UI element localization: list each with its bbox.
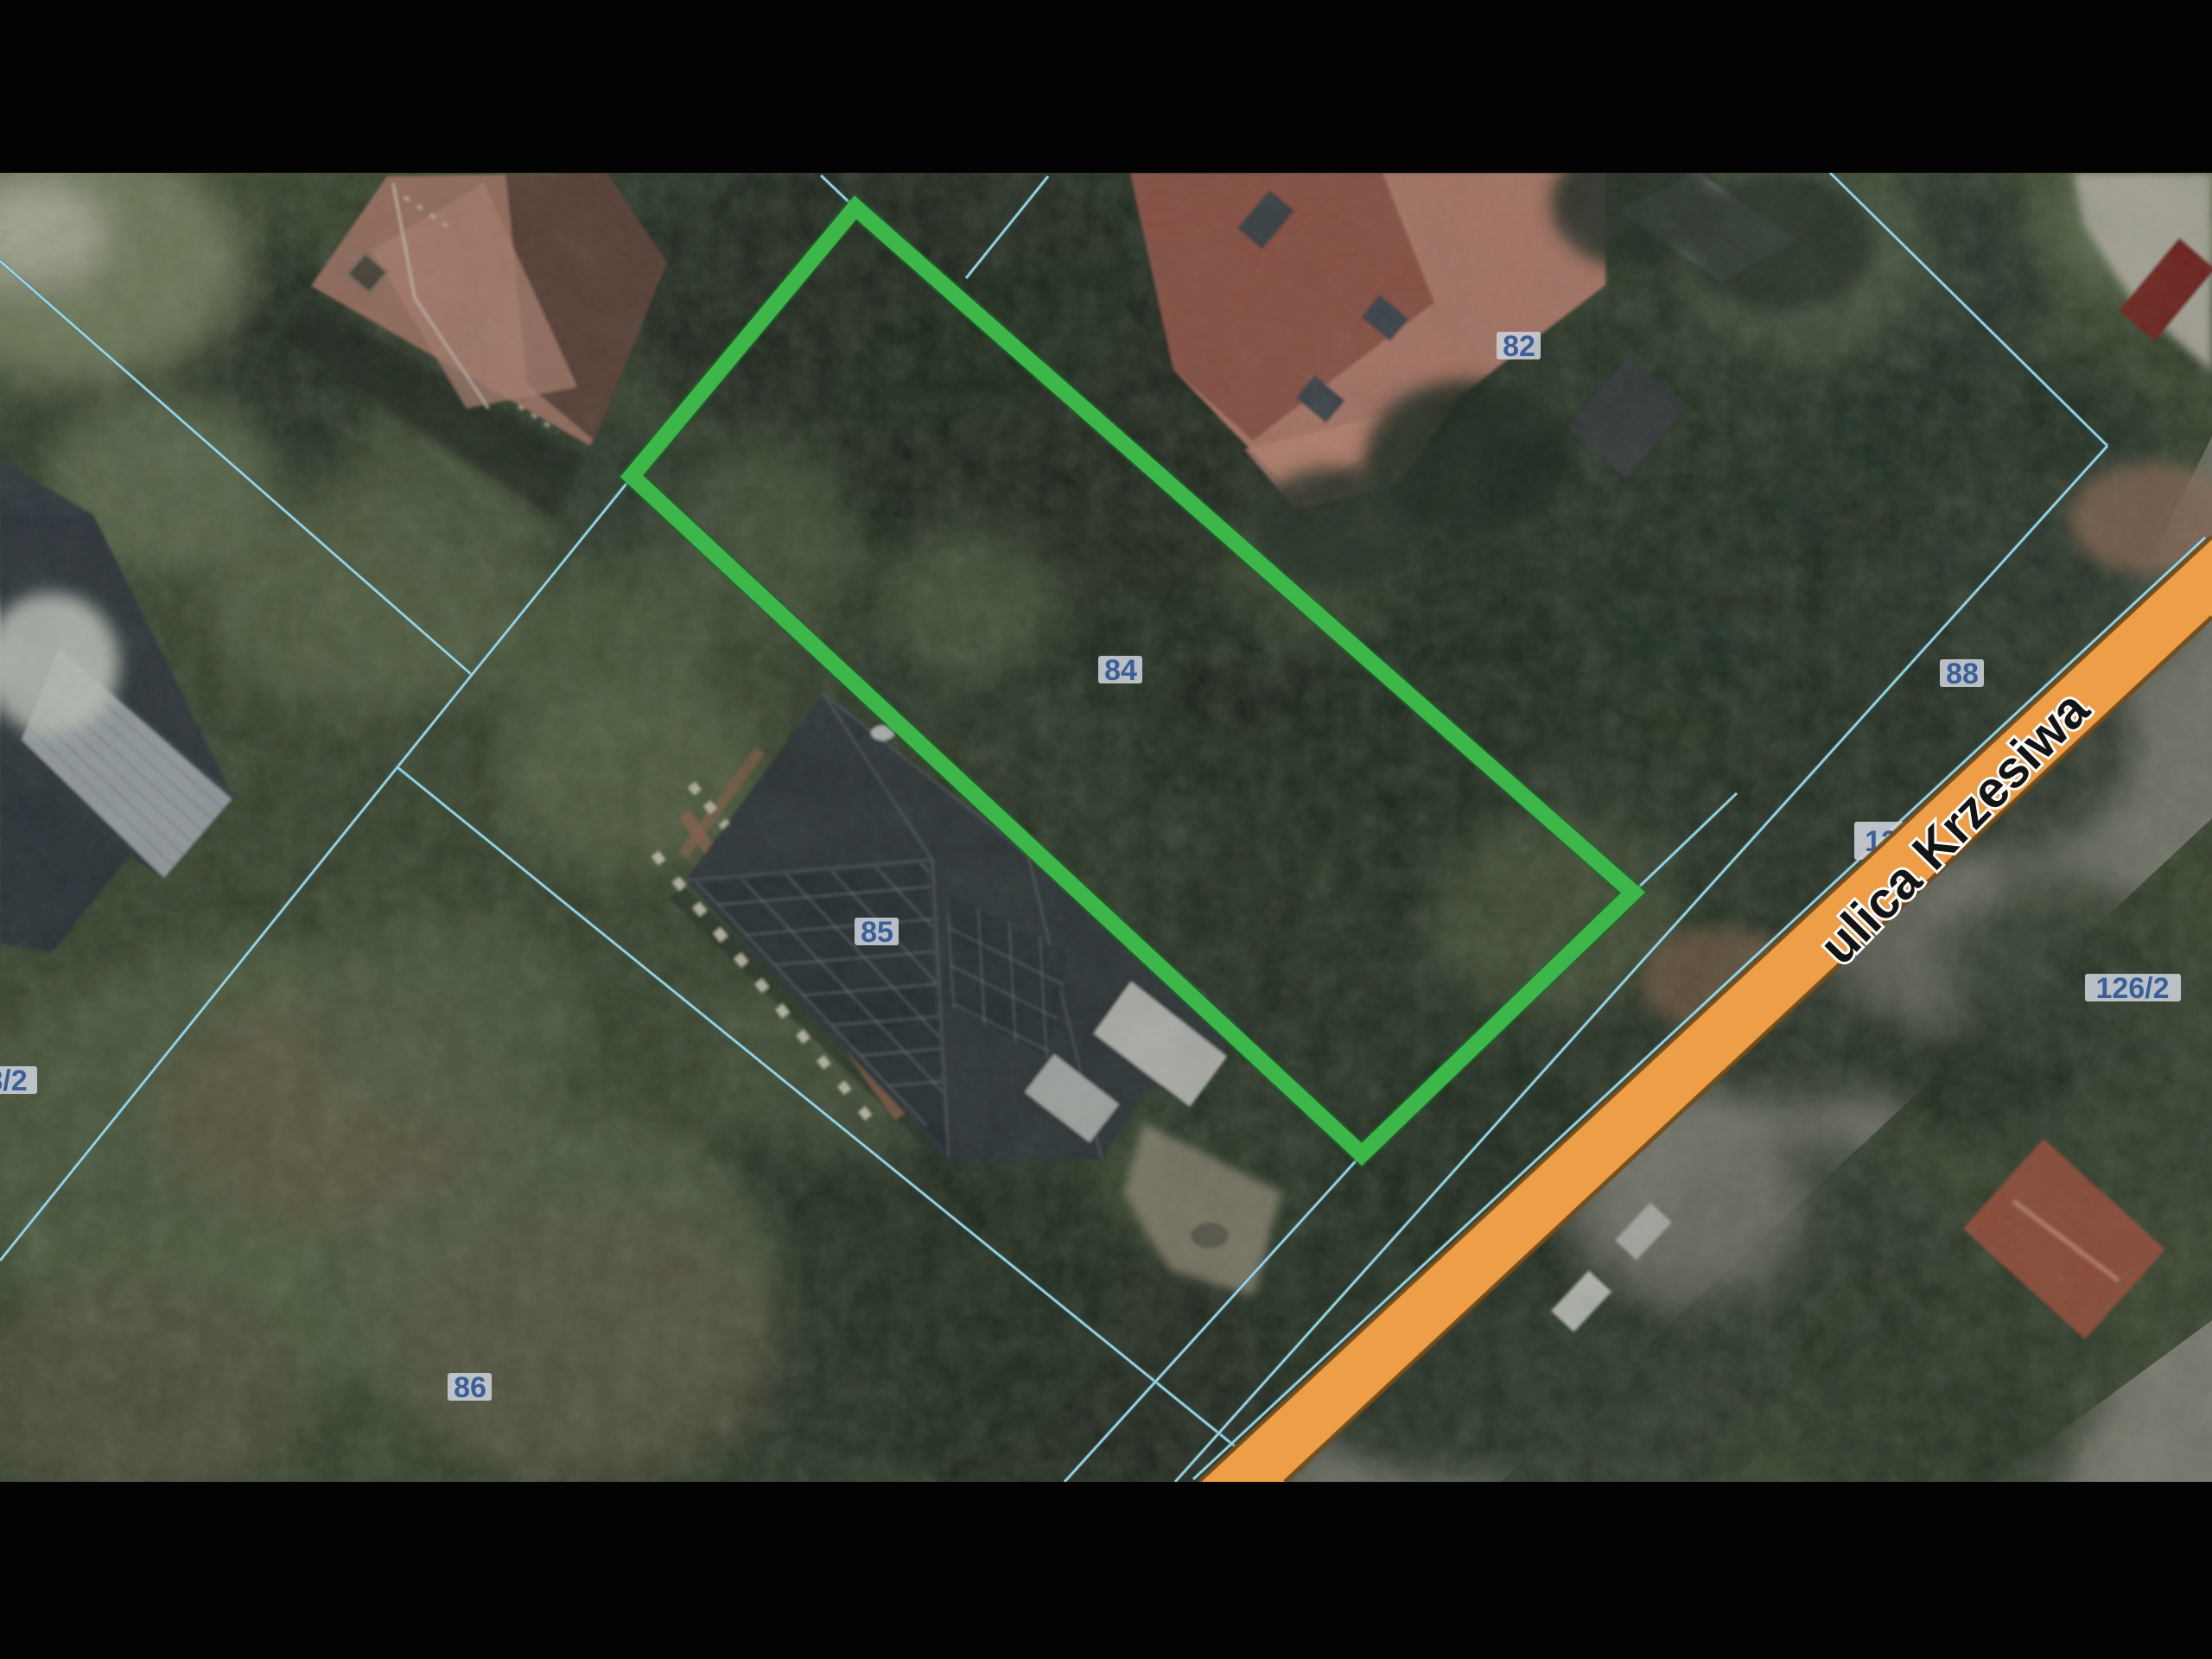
svg-text:84: 84 [1104, 654, 1137, 687]
svg-text:88: 88 [1946, 658, 1979, 690]
svg-text:126/2: 126/2 [2095, 972, 2169, 1005]
svg-text:8/2: 8/2 [0, 1065, 28, 1097]
svg-text:85: 85 [861, 916, 893, 949]
svg-text:82: 82 [1503, 330, 1535, 363]
svg-text:86: 86 [454, 1371, 486, 1404]
